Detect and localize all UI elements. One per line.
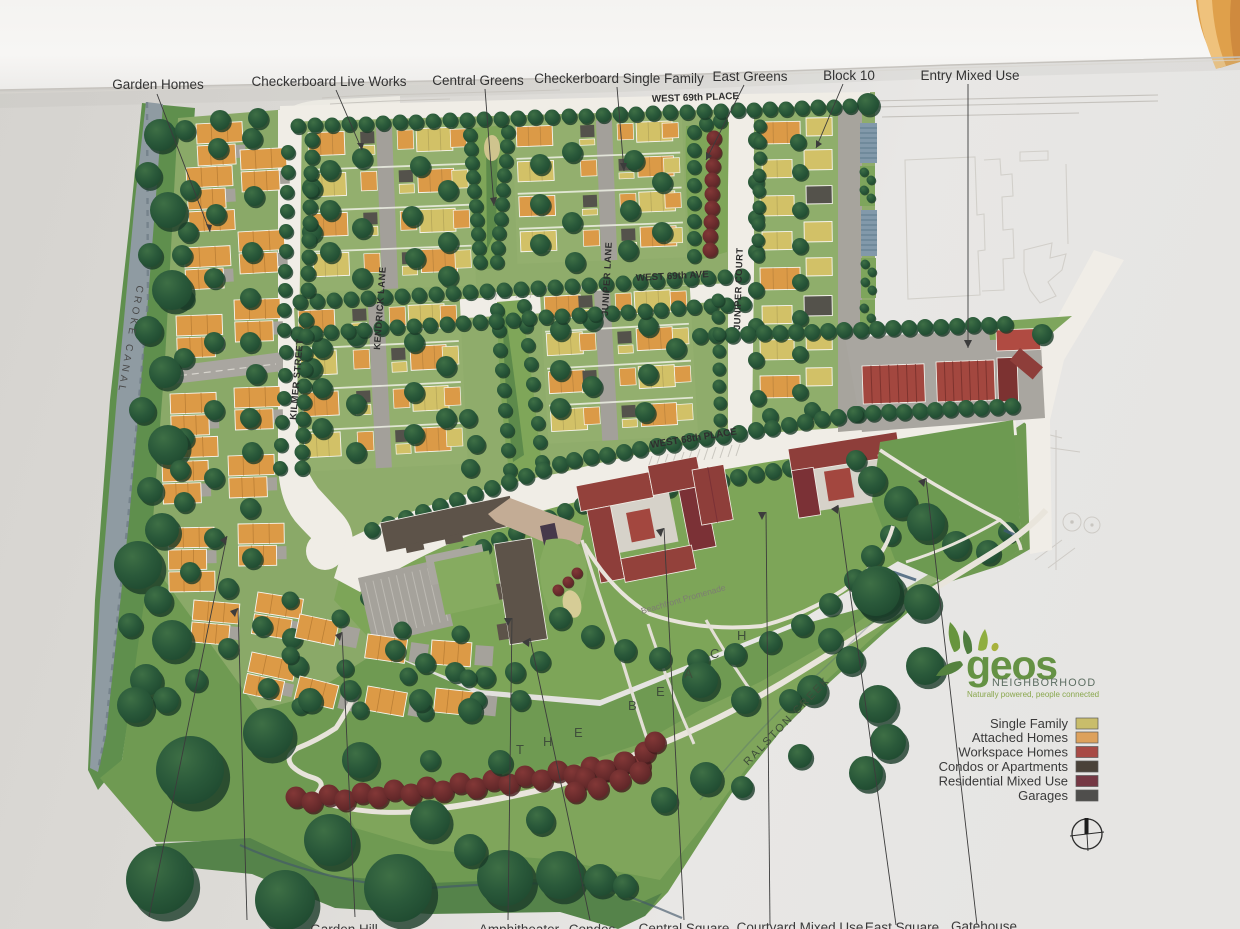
svg-text:C: C bbox=[710, 646, 719, 661]
svg-text:Block 10: Block 10 bbox=[823, 68, 875, 83]
svg-text:Garages: Garages bbox=[1018, 788, 1068, 803]
svg-text:B: B bbox=[628, 698, 637, 713]
svg-text:Central Greens: Central Greens bbox=[432, 73, 524, 88]
svg-text:Single Family: Single Family bbox=[990, 716, 1069, 731]
svg-text:Garden Homes: Garden Homes bbox=[112, 77, 204, 92]
svg-text:Checkerboard Live Works: Checkerboard Live Works bbox=[251, 74, 406, 89]
svg-text:Condos: Condos bbox=[569, 922, 616, 929]
svg-text:East Square: East Square bbox=[865, 920, 939, 929]
svg-text:E: E bbox=[656, 684, 665, 699]
svg-text:Central Square: Central Square bbox=[639, 921, 730, 929]
svg-text:H: H bbox=[737, 628, 746, 643]
svg-text:Workspace Homes: Workspace Homes bbox=[958, 745, 1068, 760]
svg-text:Entry Mixed Use: Entry Mixed Use bbox=[920, 68, 1019, 83]
svg-text:East Greens: East Greens bbox=[712, 69, 787, 84]
svg-text:Attached Homes: Attached Homes bbox=[972, 730, 1069, 745]
svg-text:A: A bbox=[684, 666, 693, 681]
svg-text:E: E bbox=[574, 725, 583, 740]
svg-text:Checkerboard Single Family: Checkerboard Single Family bbox=[534, 71, 704, 86]
svg-text:NEIGHBORHOOD: NEIGHBORHOOD bbox=[992, 677, 1096, 689]
svg-text:T: T bbox=[516, 742, 524, 757]
svg-text:Courtyard Mixed Use: Courtyard Mixed Use bbox=[737, 920, 864, 929]
svg-text:Naturally powered, people conn: Naturally powered, people connected bbox=[967, 690, 1099, 699]
svg-text:Garden Hill: Garden Hill bbox=[310, 922, 378, 929]
svg-text:Residential Mixed Use: Residential Mixed Use bbox=[939, 774, 1068, 789]
svg-text:Gatehouse: Gatehouse bbox=[951, 919, 1017, 929]
svg-text:Condos or Apartments: Condos or Apartments bbox=[939, 759, 1069, 774]
svg-text:Amphitheater: Amphitheater bbox=[479, 922, 560, 929]
